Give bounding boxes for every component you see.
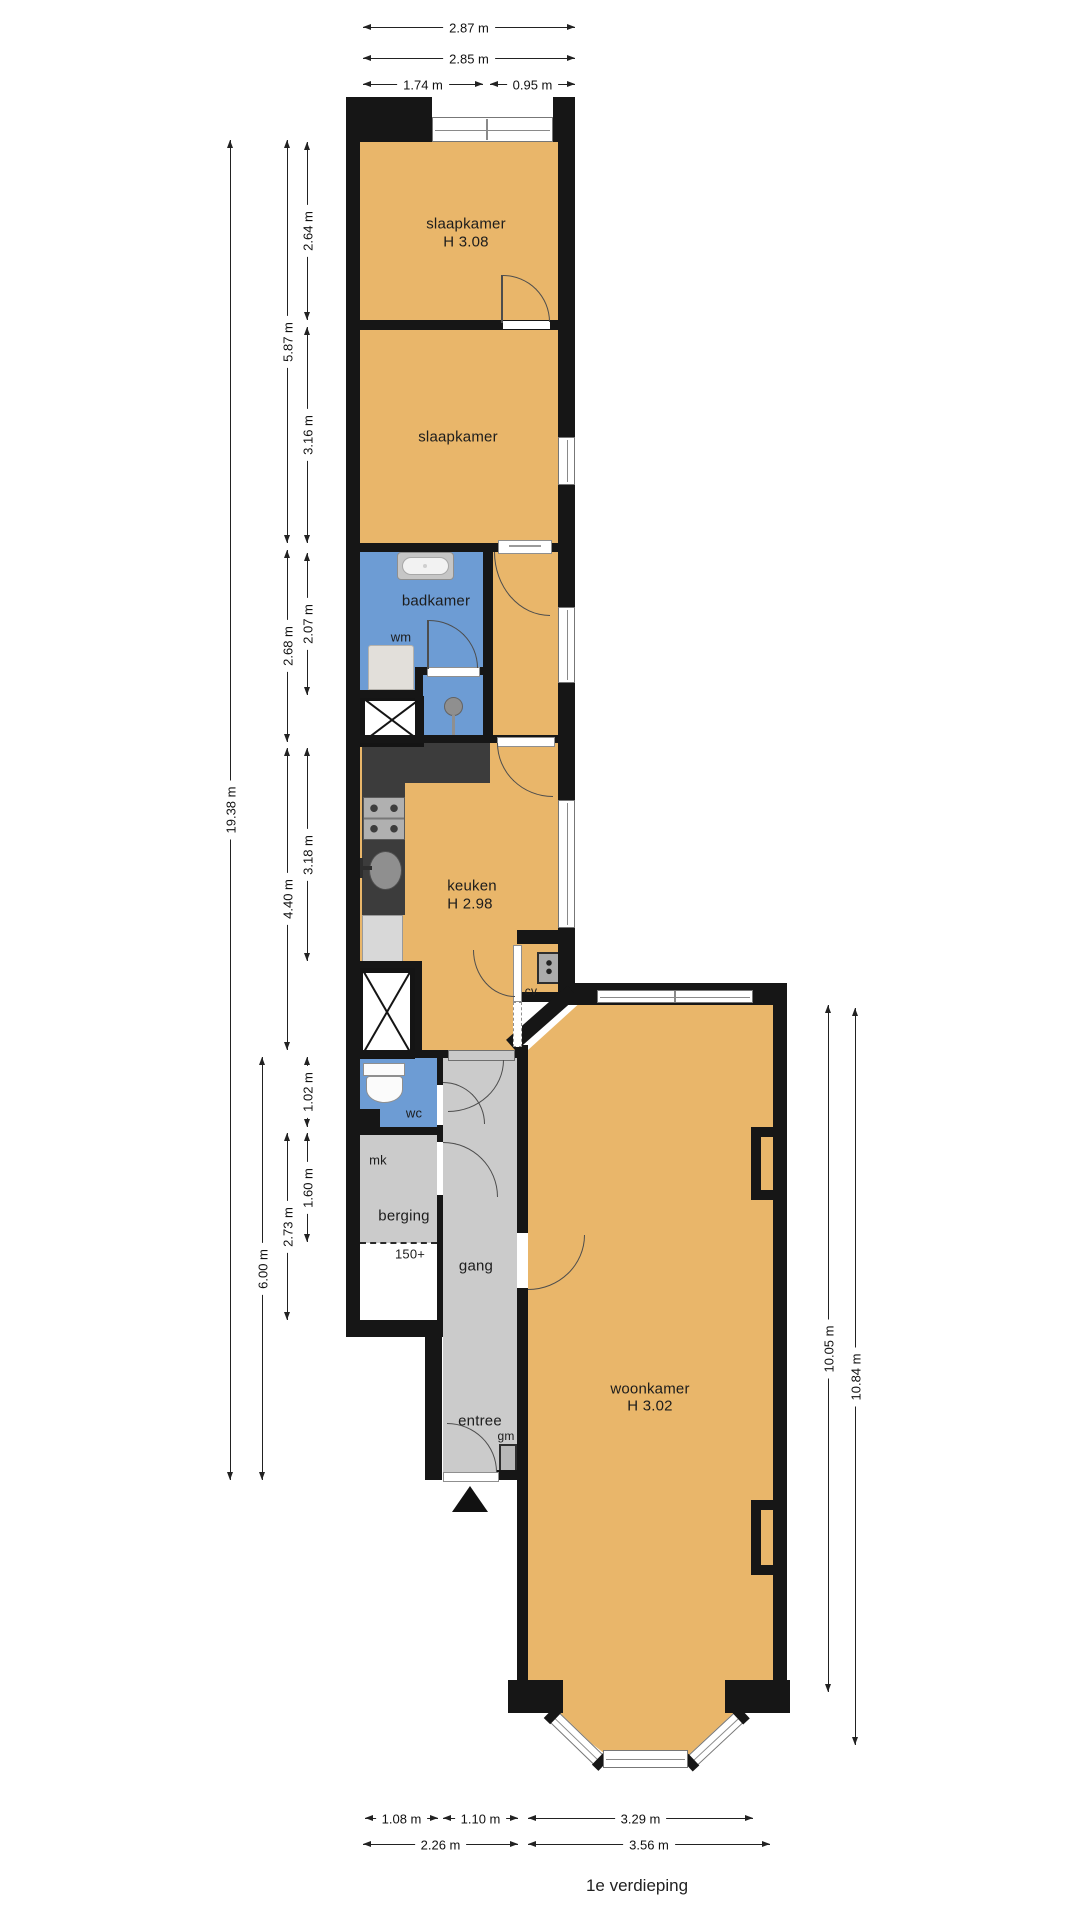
- cv-label: cv: [525, 984, 537, 998]
- kitchen-height-label: H 2.98: [447, 896, 492, 913]
- dim-bottom-2: 1.10 m: [443, 1813, 518, 1824]
- floor-plan: slaapkamer H 3.08 slaapkamer badkamer wm…: [0, 0, 1080, 1920]
- cv-niche-top-wall: [517, 930, 563, 944]
- kitchen-counter-light: [362, 915, 403, 963]
- shower-head: [444, 697, 463, 716]
- front-door-sill: [443, 1472, 499, 1482]
- storage-bottom-wall: [346, 1320, 443, 1337]
- entrance-arrow-icon: [452, 1486, 488, 1512]
- sink-bowl: [369, 851, 402, 890]
- kitchen-living-opening: [513, 1002, 522, 1047]
- entry-label: entree: [458, 1413, 502, 1430]
- hallway-label: gang: [459, 1258, 493, 1275]
- dim-left-102: 1.02 m: [301, 1057, 314, 1127]
- stove: [363, 797, 405, 840]
- dim-top-4: 0.95 m: [490, 79, 575, 90]
- dim-top-1: 2.87 m: [363, 22, 575, 33]
- shaft2: [358, 968, 415, 1059]
- bathroom-bottom-wall: [346, 690, 423, 698]
- dim-bottom-3: 3.29 m: [528, 1813, 753, 1824]
- dim-bottom-4: 2.26 m: [363, 1839, 518, 1850]
- window-line: [435, 130, 550, 131]
- bedroom1-top-window: [432, 117, 553, 142]
- dim-top-2: 2.85 m: [363, 53, 575, 64]
- dim-left-160: 1.60 m: [301, 1133, 314, 1242]
- dim-right-1084: 10.84 m: [849, 1008, 862, 1745]
- storage-ceiling-label: 150+: [395, 1247, 425, 1262]
- window-line: [567, 440, 568, 482]
- toilet-bowl: [366, 1076, 403, 1103]
- bathroom-label: badkamer: [402, 593, 470, 610]
- window-line: [606, 1759, 685, 1760]
- dim-left-268: 2.68 m: [281, 550, 294, 742]
- left-outer-wall: [346, 122, 360, 1337]
- hallway-right-wall: [517, 1045, 528, 1680]
- floor-title: 1e verdieping: [586, 1876, 688, 1896]
- dim-left-440: 4.40 m: [281, 748, 294, 1050]
- living-right-wall: [773, 1005, 787, 1713]
- bay-right-wall-block: [725, 1680, 790, 1713]
- bathtub-drain: [423, 564, 427, 568]
- window-mullion: [674, 991, 676, 1002]
- toilet-storage-wall: [346, 1127, 443, 1135]
- toilet-tank: [363, 1063, 405, 1076]
- living-door-opening: [517, 1233, 528, 1288]
- dim-left-264: 2.64 m: [301, 142, 314, 320]
- toilet-label: wc: [406, 1106, 422, 1121]
- shower-left-wall: [415, 667, 423, 743]
- bedroom-door-opening: [503, 321, 550, 329]
- window-line: [567, 610, 568, 680]
- entry-bottom-wall: [497, 1470, 528, 1480]
- bedroom1-label: slaapkamer: [426, 216, 506, 233]
- living-room-height-label: H 3.02: [627, 1398, 672, 1415]
- shower-hose: [452, 715, 455, 736]
- sill-line: [509, 545, 541, 547]
- toilet-notch: [358, 1109, 380, 1127]
- window-mullion: [486, 119, 488, 140]
- meter-closet-label: mk: [369, 1153, 387, 1168]
- washing-machine: [368, 645, 414, 690]
- bay-window-bottom: [603, 1750, 688, 1768]
- dim-top-3: 1.74 m: [363, 79, 483, 90]
- dim-left-600: 6.00 m: [256, 1057, 269, 1480]
- bathroom-shower-doorsill: [427, 667, 480, 677]
- chimney-lower-inner: [761, 1510, 773, 1565]
- kitchen-label: keuken: [447, 878, 497, 895]
- kitchen-counter-top: [362, 743, 490, 783]
- dim-left-316: 3.16 m: [301, 327, 314, 543]
- bedroom2-label: slaapkamer: [418, 429, 498, 446]
- bedroom1-height-label: H 3.08: [443, 234, 488, 251]
- storage-label: berging: [378, 1208, 429, 1225]
- gm-meter: [499, 1444, 517, 1472]
- window-line: [567, 803, 568, 925]
- washing-machine-label: wm: [391, 630, 412, 645]
- dim-right-1005: 10.05 m: [822, 1005, 835, 1692]
- entry-left-wall: [425, 1337, 442, 1480]
- storage-floor: [360, 1133, 437, 1243]
- living-room-label: woonkamer: [610, 1381, 689, 1398]
- bedroom2-window: [558, 437, 575, 485]
- dim-left-total: 19.38 m: [224, 140, 237, 1480]
- dim-bottom-1: 1.08 m: [365, 1813, 438, 1824]
- dim-left-207: 2.07 m: [301, 553, 314, 695]
- bathroom-right-wall: [483, 552, 493, 743]
- chimney-upper-inner: [761, 1137, 773, 1190]
- inner-hall-window: [558, 607, 575, 683]
- dim-left-273: 2.73 m: [281, 1133, 294, 1320]
- kitchen-window: [558, 800, 575, 928]
- dim-left-587: 5.87 m: [281, 140, 294, 543]
- dim-bottom-5: 3.56 m: [528, 1839, 770, 1850]
- storage-ceiling-line: [360, 1242, 437, 1244]
- dim-left-318: 3.18 m: [301, 748, 314, 961]
- gm-label: gm: [497, 1429, 514, 1443]
